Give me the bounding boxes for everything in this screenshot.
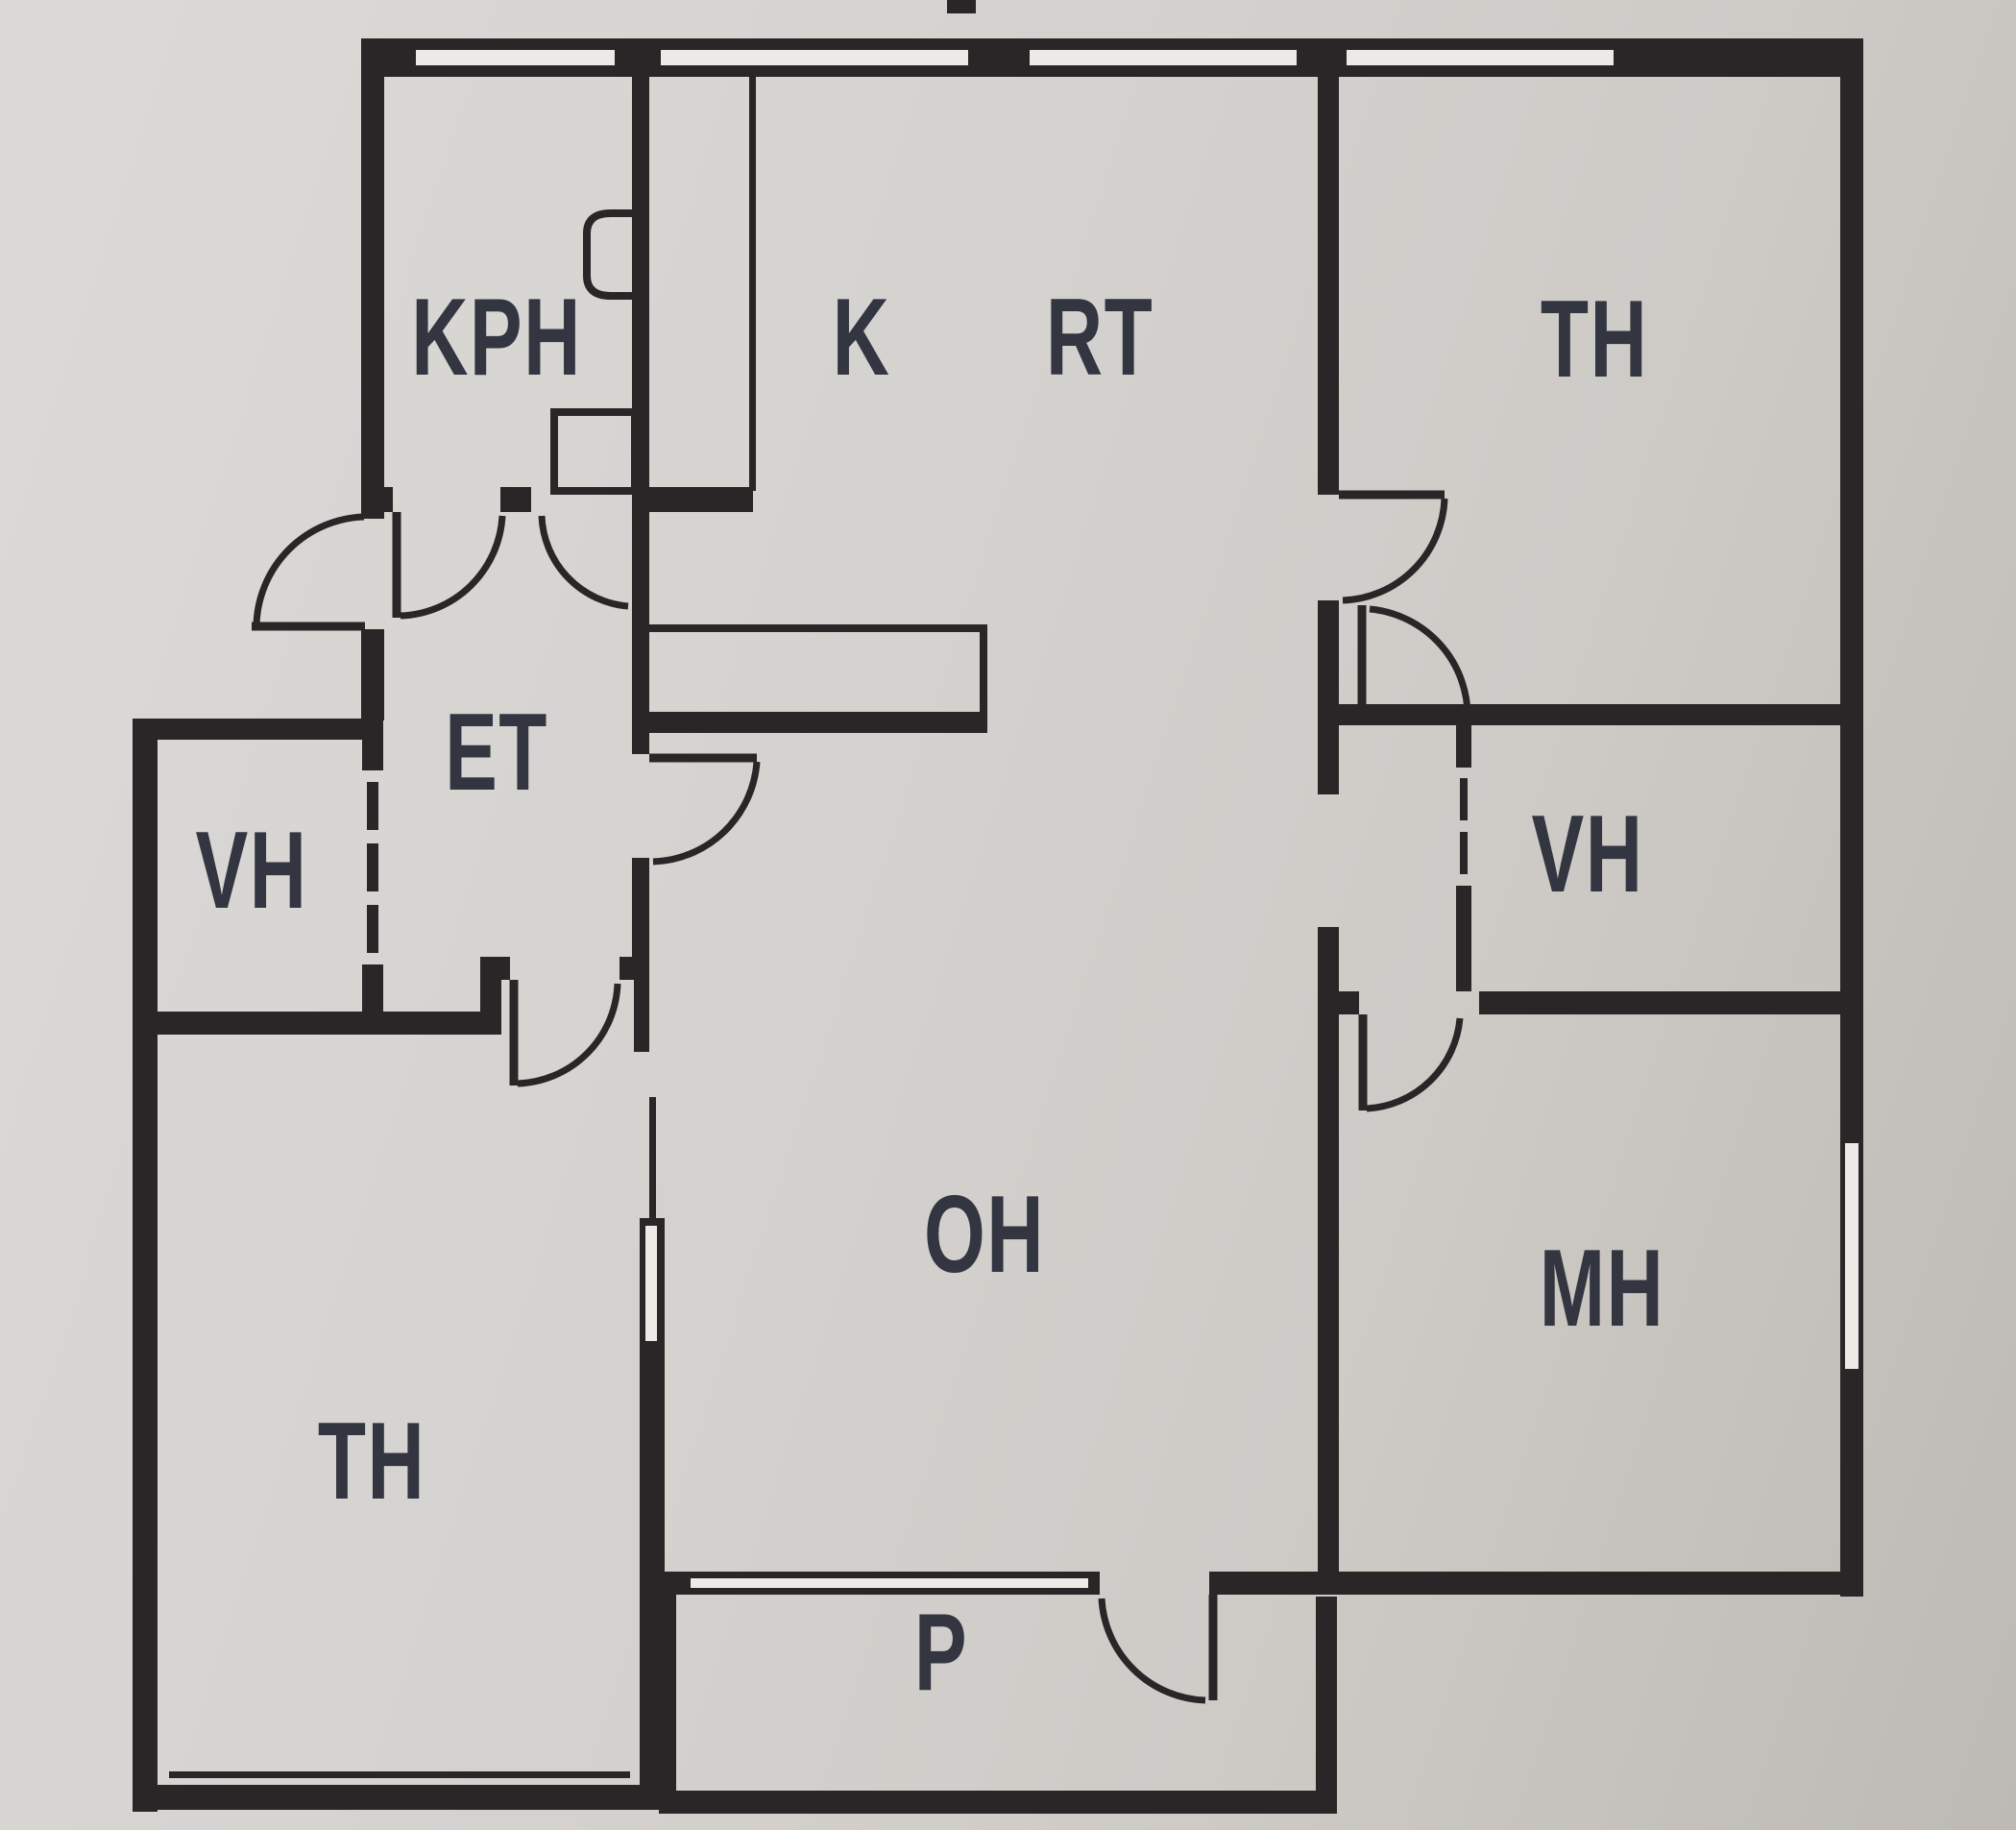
door-p-arc bbox=[1102, 1598, 1205, 1700]
room-label-et: ET bbox=[445, 692, 548, 814]
door-th-bottom bbox=[514, 980, 618, 1086]
wall-kph-bottom-c bbox=[634, 487, 753, 512]
wall-mh-bottom bbox=[1320, 1572, 1863, 1595]
door-entry-arc bbox=[256, 517, 364, 624]
door-th-top-arc bbox=[1343, 499, 1445, 600]
room-label-vh-left: VH bbox=[196, 810, 308, 932]
room-label-mh: MH bbox=[1540, 1228, 1665, 1350]
wall-rt-th-mid bbox=[1318, 600, 1339, 794]
window-mh-right bbox=[1845, 1143, 1858, 1369]
wall-upperleft-exterior bbox=[361, 38, 384, 519]
floor-plan-canvas: KPH K RT TH ET VH VH OH MH TH P bbox=[0, 0, 2016, 1830]
kph-closet-box bbox=[554, 412, 635, 491]
window-rt bbox=[1030, 50, 1297, 65]
wall-oh-p-right bbox=[1209, 1572, 1320, 1595]
wall-vh-right-solid bbox=[1456, 886, 1471, 991]
wall-p-right bbox=[1316, 1597, 1337, 1802]
wall-rt-th-upper bbox=[1318, 77, 1339, 495]
room-label-vh-right: VH bbox=[1532, 793, 1644, 915]
door-entry bbox=[252, 517, 365, 626]
wall-et-vh-dash bbox=[367, 782, 378, 830]
room-label-k: K bbox=[833, 277, 891, 399]
wall-th-bottom-exterior bbox=[133, 1785, 665, 1810]
wall-mh-top-right bbox=[1479, 991, 1863, 1014]
window-kph bbox=[416, 50, 615, 65]
wall-th-oh-solid bbox=[640, 1345, 665, 1785]
room-label-oh: OH bbox=[924, 1174, 1045, 1296]
door-corridor-arc bbox=[653, 762, 757, 862]
wall-kitchen-divider bbox=[749, 77, 756, 491]
door-th-vh-arc bbox=[1370, 609, 1468, 720]
wall-vh-right-stub bbox=[1456, 725, 1471, 768]
window-th-bottom-line bbox=[169, 1771, 630, 1778]
wall-top-tick bbox=[947, 0, 976, 13]
door-closet bbox=[542, 516, 628, 606]
wall-mh-top-left bbox=[1339, 991, 1359, 1014]
door-corridor bbox=[649, 758, 757, 862]
wall-et-vh-stub bbox=[362, 719, 383, 770]
door-mh bbox=[1363, 1014, 1460, 1110]
wall-peninsula-bottom bbox=[649, 712, 987, 733]
room-label-rt: RT bbox=[1046, 277, 1154, 399]
wall-peninsula-top bbox=[649, 624, 987, 632]
wall-vh-left-bottom bbox=[133, 1012, 501, 1035]
doors bbox=[252, 495, 1468, 1700]
window-oh-p bbox=[691, 1578, 1088, 1588]
window-th-top bbox=[1347, 50, 1614, 65]
wall-vh-right-dash bbox=[1460, 778, 1468, 820]
floor-plan: KPH K RT TH ET VH VH OH MH TH P bbox=[0, 0, 2016, 1830]
door-p bbox=[1102, 1595, 1213, 1700]
door-closet-arc bbox=[542, 516, 628, 606]
door-kph-arc bbox=[401, 516, 502, 616]
door-kph bbox=[397, 512, 502, 618]
wall-et-vh-dash bbox=[367, 905, 378, 953]
window-k bbox=[661, 50, 968, 65]
wall-vh-left-top bbox=[133, 719, 383, 740]
door-th-top bbox=[1339, 495, 1445, 600]
wall-p-bottom bbox=[659, 1791, 1337, 1814]
wall-et-th-left bbox=[480, 957, 510, 980]
wall-kph-bottom-a bbox=[361, 487, 393, 512]
wall-peninsula-right bbox=[980, 624, 987, 719]
door-mh-arc bbox=[1367, 1018, 1460, 1109]
wall-upperleft-below-entry bbox=[361, 629, 384, 720]
room-label-p: P bbox=[914, 1592, 968, 1714]
window-th-oh-glazed-core bbox=[645, 1226, 657, 1341]
wall-corridor-stub bbox=[634, 980, 649, 1052]
wall-vh-right-dash bbox=[1460, 832, 1468, 874]
room-label-kph: KPH bbox=[411, 277, 582, 399]
wall-th-oh-thin bbox=[649, 1097, 656, 1220]
wall-et-vh-dash bbox=[367, 843, 378, 891]
room-label-th-top: TH bbox=[1541, 279, 1648, 401]
kph-washbasin-fixture bbox=[587, 213, 632, 296]
wall-corridor-lower bbox=[632, 858, 649, 980]
room-label-th-bottom: TH bbox=[318, 1401, 425, 1523]
door-th-bottom-arc bbox=[518, 984, 618, 1084]
wall-kph-bottom-b bbox=[500, 487, 531, 512]
wall-oh-mh bbox=[1318, 927, 1339, 1572]
wall-et-vh-solid bbox=[362, 964, 383, 1012]
wall-th-vh bbox=[1339, 704, 1863, 725]
wall-left-exterior bbox=[133, 719, 158, 1812]
